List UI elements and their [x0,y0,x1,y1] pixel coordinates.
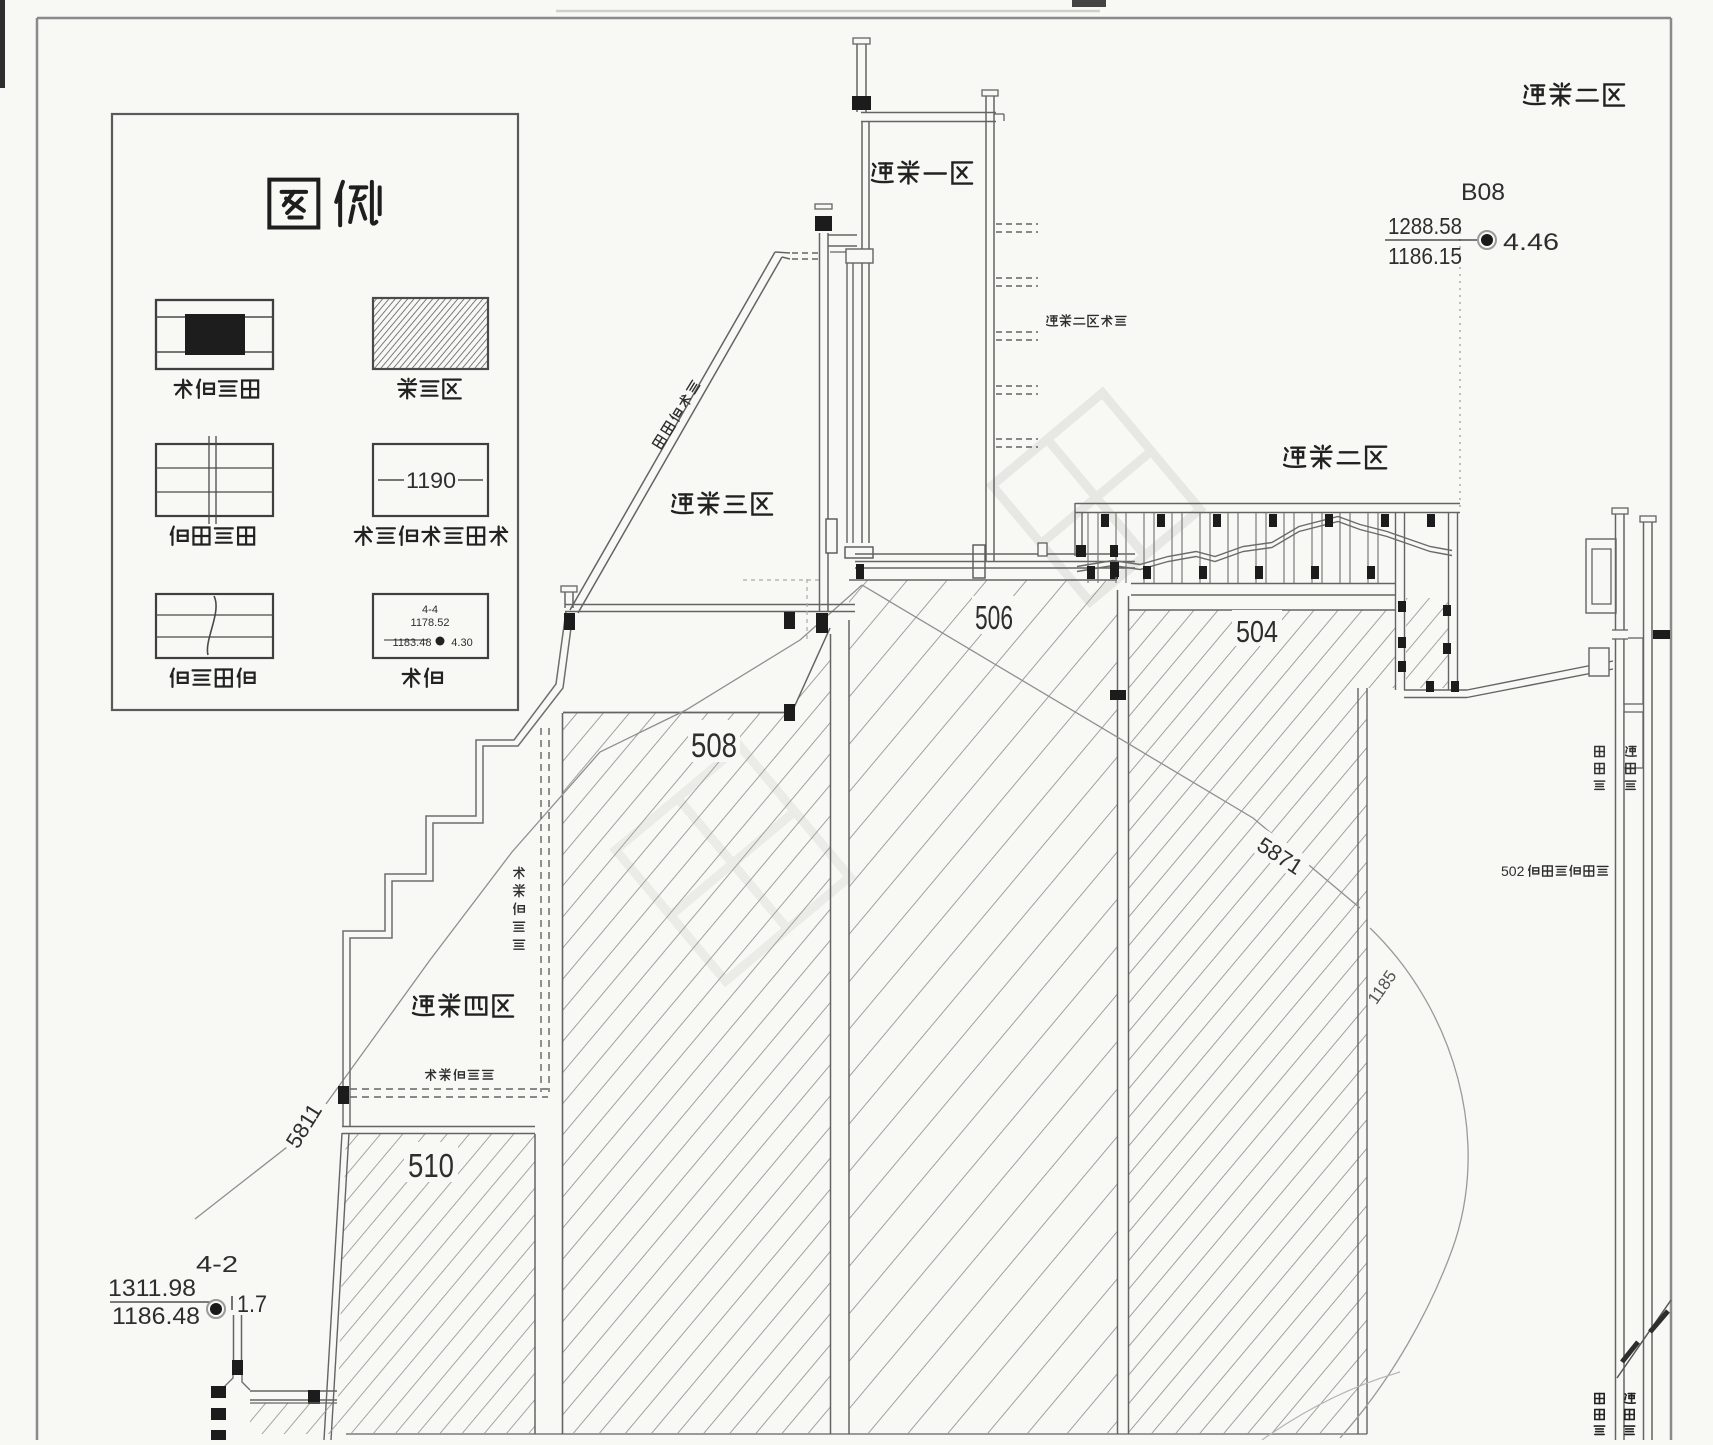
svg-text:508: 508 [691,727,737,765]
svg-text:1183.48: 1183.48 [393,637,432,649]
svg-text:4-2: 4-2 [196,1251,238,1277]
svg-text:4.46: 4.46 [1503,229,1559,256]
svg-text:504: 504 [1236,614,1278,649]
svg-text:1186.15: 1186.15 [1388,243,1462,269]
svg-text:B08: B08 [1461,179,1505,206]
svg-text:1186.48: 1186.48 [112,1303,200,1330]
svg-text:4-4: 4-4 [422,604,438,616]
svg-text:4.30: 4.30 [451,637,472,649]
svg-text:1190: 1190 [406,468,456,493]
svg-text:1288.58: 1288.58 [1388,213,1462,239]
svg-text:510: 510 [408,1147,454,1184]
svg-text:1178.52: 1178.52 [411,617,450,629]
svg-text:1.7: 1.7 [237,1291,267,1318]
svg-text:1311.98: 1311.98 [108,1275,196,1302]
svg-text:502: 502 [1501,863,1525,879]
svg-text:506: 506 [975,599,1013,636]
